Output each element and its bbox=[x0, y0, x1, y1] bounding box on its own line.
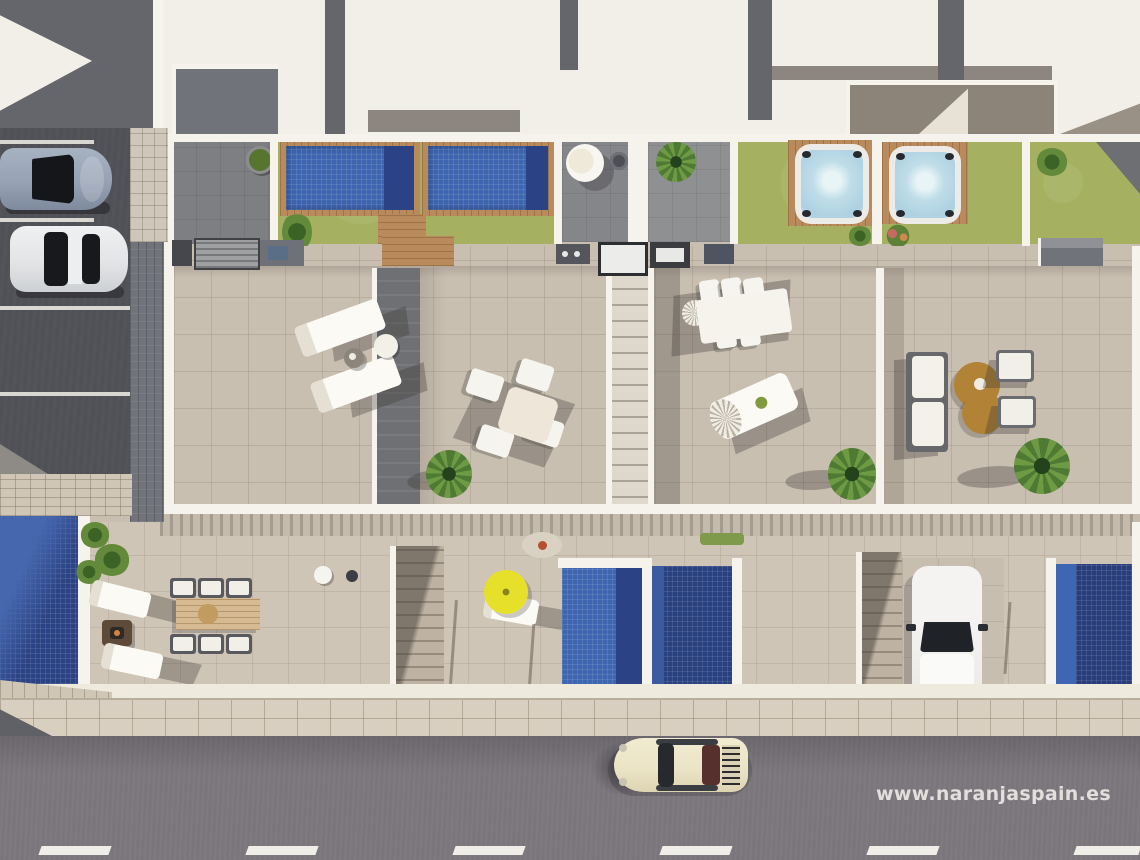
roof-access-box-2 bbox=[846, 80, 972, 139]
jacuzzi-2-headrest-4 bbox=[945, 210, 954, 217]
sofa-cushion-1 bbox=[912, 356, 944, 398]
solarium-parapet-1 bbox=[270, 142, 278, 244]
roof-shadow-strip-1 bbox=[368, 110, 520, 132]
outdoor-kitchen-2-top bbox=[656, 248, 684, 262]
jacuzzi-2 bbox=[889, 146, 961, 224]
outdoor-kitchen-1 bbox=[598, 242, 648, 276]
armchair-1 bbox=[996, 350, 1034, 382]
dining-chair-b3 bbox=[226, 634, 252, 654]
jacuzzi-1-headrest-3 bbox=[802, 210, 811, 217]
sports-car-glass bbox=[32, 154, 74, 204]
pool5-light-edge bbox=[1056, 564, 1076, 696]
side-table-dish bbox=[349, 353, 356, 360]
ground-pool-left bbox=[0, 514, 78, 684]
roof-access-box-1 bbox=[172, 64, 278, 135]
ac-unit-3-panel bbox=[268, 246, 288, 260]
pool5-coping bbox=[1046, 558, 1056, 698]
lane-dash-2 bbox=[245, 846, 318, 855]
lane-dash-3 bbox=[452, 846, 525, 855]
solarium-parapet-3 bbox=[628, 142, 648, 242]
jacuzzi-2-headrest-3 bbox=[896, 210, 905, 217]
suv-mirror-right bbox=[978, 624, 988, 631]
parking-line-1 bbox=[0, 140, 94, 144]
lawn-plant-right bbox=[1036, 148, 1068, 176]
classic-car-windshield bbox=[658, 743, 674, 787]
dining-chair-t1-cushion bbox=[173, 581, 193, 595]
pool3-coping bbox=[558, 558, 650, 568]
jacuzzi-1-headrest-2 bbox=[853, 151, 862, 158]
parking-line-3 bbox=[0, 306, 130, 310]
dining-chair-t2 bbox=[198, 578, 224, 598]
daybed-cushion bbox=[753, 395, 769, 411]
dining-chair-b1 bbox=[170, 634, 196, 654]
ac-unit-4 bbox=[556, 244, 590, 264]
roof-divider-strip-1 bbox=[325, 0, 345, 136]
palm-tree-unit3 bbox=[828, 448, 876, 500]
roof-shadow-strip-2 bbox=[772, 66, 944, 80]
parking-line-4 bbox=[0, 392, 130, 396]
pool3-shadow-side bbox=[616, 568, 642, 690]
solarium-parapet-6 bbox=[1022, 142, 1030, 246]
solarium-parapet-2 bbox=[554, 142, 562, 244]
sports-car-hood-highlight bbox=[80, 156, 104, 202]
armchair-2 bbox=[998, 396, 1036, 428]
roof-parapet-left bbox=[153, 0, 163, 142]
staircase-1-shadow bbox=[396, 546, 444, 694]
white-parasol-top bbox=[374, 334, 398, 358]
dining-chair-b2-cushion bbox=[201, 637, 221, 651]
ground-pool-right bbox=[1056, 564, 1140, 696]
walkway-gray-pavers bbox=[130, 242, 164, 522]
terrace-bottom-wall bbox=[160, 504, 1140, 514]
pergola-slat-band bbox=[160, 514, 1140, 536]
armchair-1-cushion bbox=[999, 353, 1031, 379]
terrace-wall-right bbox=[1132, 246, 1140, 520]
jacuzzi-1 bbox=[795, 144, 869, 224]
jacuzzi-2-headrest-1 bbox=[896, 153, 905, 160]
pool-2-shadow-end bbox=[526, 146, 548, 210]
jacuzzi-1-water bbox=[801, 150, 863, 218]
dining-chair-t3 bbox=[226, 578, 252, 598]
sedan-roof bbox=[68, 234, 82, 284]
classic-car-headlight-2 bbox=[619, 778, 627, 786]
unit4-wall bbox=[876, 268, 884, 520]
hedge-strip bbox=[700, 533, 744, 545]
deck-steps-lower bbox=[382, 236, 454, 266]
classic-car-headlight-1 bbox=[619, 744, 627, 752]
jacuzzi-1-headrest-1 bbox=[802, 151, 811, 158]
suv-mirror-left bbox=[906, 624, 916, 631]
walkway-light-pavers bbox=[130, 128, 168, 242]
yellow-parasol bbox=[484, 570, 528, 614]
roof-box-2-light-wedge bbox=[899, 85, 972, 139]
lounge-sofa bbox=[906, 352, 948, 452]
watermark: www.naranjaspain.es bbox=[876, 783, 1111, 805]
flower-bed bbox=[884, 224, 912, 248]
dining-chair-b1-cushion bbox=[173, 637, 193, 651]
round-planter bbox=[610, 152, 628, 170]
roof-parapet-bottom bbox=[160, 134, 1140, 142]
lower-wall-right bbox=[1132, 522, 1140, 700]
lane-dash-5 bbox=[866, 846, 939, 855]
ac-unit-3 bbox=[260, 240, 304, 266]
ac-unit-4-knob-1 bbox=[562, 251, 568, 257]
solarium-parapet-5 bbox=[872, 140, 882, 244]
lane-dash-1 bbox=[38, 846, 111, 855]
roof-divider-strip-4 bbox=[938, 0, 964, 80]
ground-pool-center-b bbox=[652, 566, 732, 692]
palm-tree-solarium bbox=[656, 142, 696, 182]
pool4-light-edge bbox=[652, 566, 664, 692]
classic-car-engine-vents bbox=[722, 745, 740, 785]
dining-chair-t3-cushion bbox=[229, 581, 249, 595]
ac-unit-5 bbox=[704, 244, 734, 264]
dining-chair-t2-cushion bbox=[201, 581, 221, 595]
ground-pool-center-a bbox=[562, 568, 642, 690]
classic-car-rear-window bbox=[702, 745, 720, 785]
outdoor-wood-dining-table bbox=[176, 598, 260, 630]
solarium-parapet-4 bbox=[730, 142, 738, 244]
staircase-2-shadow bbox=[862, 552, 902, 692]
lawn-shrub-2 bbox=[848, 226, 872, 246]
side-table bbox=[344, 348, 364, 368]
sedan-windshield bbox=[44, 232, 68, 286]
jacuzzi-2-headrest-2 bbox=[945, 153, 954, 160]
small-white-table bbox=[314, 566, 332, 584]
ac-unit-1 bbox=[172, 240, 192, 266]
suv-windshield bbox=[920, 622, 974, 652]
roof-shadow-strip-3 bbox=[964, 66, 1052, 80]
hanging-chair-cushion bbox=[538, 541, 547, 550]
sedan-car bbox=[10, 226, 128, 292]
sedan-rear-glass bbox=[82, 234, 100, 284]
ac-unit-6 bbox=[1038, 238, 1103, 266]
ac-unit-4-knob-2 bbox=[574, 251, 580, 257]
ac-unit-2 bbox=[194, 238, 260, 270]
armchair-2-cushion bbox=[1001, 399, 1033, 425]
lower-bottom-wall bbox=[0, 684, 1140, 698]
rooftop-pool-2 bbox=[428, 146, 548, 210]
roof-divider-strip-3 bbox=[748, 0, 772, 120]
jacuzzi-2-water bbox=[895, 152, 955, 218]
small-dark-stool bbox=[346, 570, 358, 582]
dining-chair-b3-cushion bbox=[229, 637, 249, 651]
jacuzzi-1-headrest-4 bbox=[853, 210, 862, 217]
palm-tree-unit2 bbox=[426, 450, 472, 498]
sidewalk bbox=[0, 698, 1140, 738]
sofa-cushion-2 bbox=[912, 402, 944, 446]
ac-unit-6-top bbox=[1041, 238, 1103, 248]
dining-chair-b2 bbox=[198, 634, 224, 654]
brick-pavement bbox=[0, 474, 132, 516]
aerial-property-render: www.naranjaspain.es bbox=[0, 0, 1140, 860]
classic-car bbox=[614, 738, 748, 792]
pool-1-shadow-end bbox=[384, 146, 414, 210]
lane-dash-4 bbox=[659, 846, 732, 855]
lane-dash-6 bbox=[1073, 846, 1140, 855]
outdoor-kitchen-2 bbox=[650, 242, 690, 268]
roof-divider-strip-2 bbox=[560, 0, 578, 70]
roof-access-box-3 bbox=[968, 80, 1058, 139]
hanging-egg-chair bbox=[566, 144, 604, 182]
white-suv bbox=[912, 566, 982, 702]
sports-car bbox=[0, 148, 112, 210]
pool4-coping bbox=[732, 558, 742, 692]
rooftop-pool-1 bbox=[286, 146, 414, 210]
dining-chair-t1 bbox=[170, 578, 196, 598]
fire-pit-flame bbox=[114, 630, 120, 636]
table-trivet bbox=[198, 604, 218, 624]
hanging-chair-lower bbox=[522, 532, 562, 558]
pools-divider-wall bbox=[642, 558, 652, 692]
palm-tree-unit4 bbox=[1014, 438, 1070, 494]
parking-line-2 bbox=[0, 218, 94, 222]
